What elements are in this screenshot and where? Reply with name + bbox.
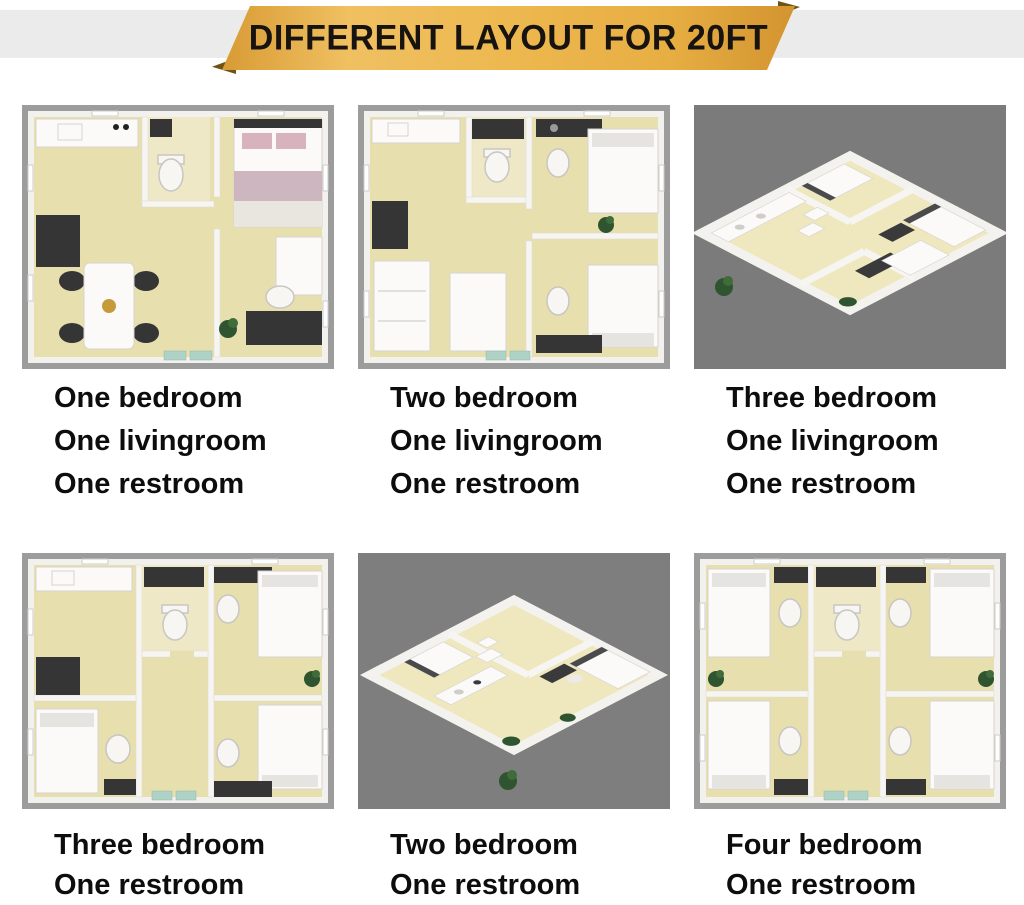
caption-four-bedroom: Four bedroom One restroom xyxy=(726,825,1006,905)
caption-two-bedroom-living: Two bedroom One livingroom One restroom xyxy=(390,377,670,506)
caption-line: One restroom xyxy=(390,865,670,905)
caption-line: Four bedroom xyxy=(726,825,1006,865)
floorplan-grid: One bedroom One livingroom One restroom xyxy=(22,105,1006,905)
caption-line: Three bedroom xyxy=(726,377,1006,420)
caption-line: Two bedroom xyxy=(390,825,670,865)
floorplan-image-two-bedroom xyxy=(358,553,670,809)
page-title: DIFFERENT LAYOUT FOR 20FT xyxy=(249,18,768,59)
caption-line: One livingroom xyxy=(54,420,334,463)
caption-one-bedroom: One bedroom One livingroom One restroom xyxy=(54,377,334,506)
caption-line: Two bedroom xyxy=(390,377,670,420)
caption-line: One restroom xyxy=(726,865,1006,905)
caption-line: One restroom xyxy=(54,865,334,905)
caption-line: One livingroom xyxy=(390,420,670,463)
panel-two-bedroom-living: Two bedroom One livingroom One restroom xyxy=(358,105,670,553)
caption-line: One livingroom xyxy=(726,420,1006,463)
caption-line: One restroom xyxy=(390,463,670,506)
caption-line: Three bedroom xyxy=(54,825,334,865)
caption-line: One bedroom xyxy=(54,377,334,420)
panel-one-bedroom: One bedroom One livingroom One restroom xyxy=(22,105,334,553)
floorplan-image-one-bedroom xyxy=(22,105,334,369)
caption-two-bedroom: Two bedroom One restroom xyxy=(390,825,670,905)
title-ribbon: DIFFERENT LAYOUT FOR 20FT xyxy=(222,6,795,70)
panel-four-bedroom: Four bedroom One restroom xyxy=(694,553,1006,905)
panel-three-bedroom-living: Three bedroom One livingroom One restroo… xyxy=(694,105,1006,553)
floorplan-image-two-bedroom-living xyxy=(358,105,670,369)
panel-three-bedroom: Three bedroom One restroom xyxy=(22,553,334,905)
floorplan-image-three-bedroom-living xyxy=(694,105,1006,369)
caption-line: One restroom xyxy=(54,463,334,506)
floorplan-image-three-bedroom xyxy=(22,553,334,809)
caption-three-bedroom-living: Three bedroom One livingroom One restroo… xyxy=(726,377,1006,506)
caption-three-bedroom: Three bedroom One restroom xyxy=(54,825,334,905)
caption-line: One restroom xyxy=(726,463,1006,506)
floorplan-image-four-bedroom xyxy=(694,553,1006,809)
panel-two-bedroom: Two bedroom One restroom xyxy=(358,553,670,905)
